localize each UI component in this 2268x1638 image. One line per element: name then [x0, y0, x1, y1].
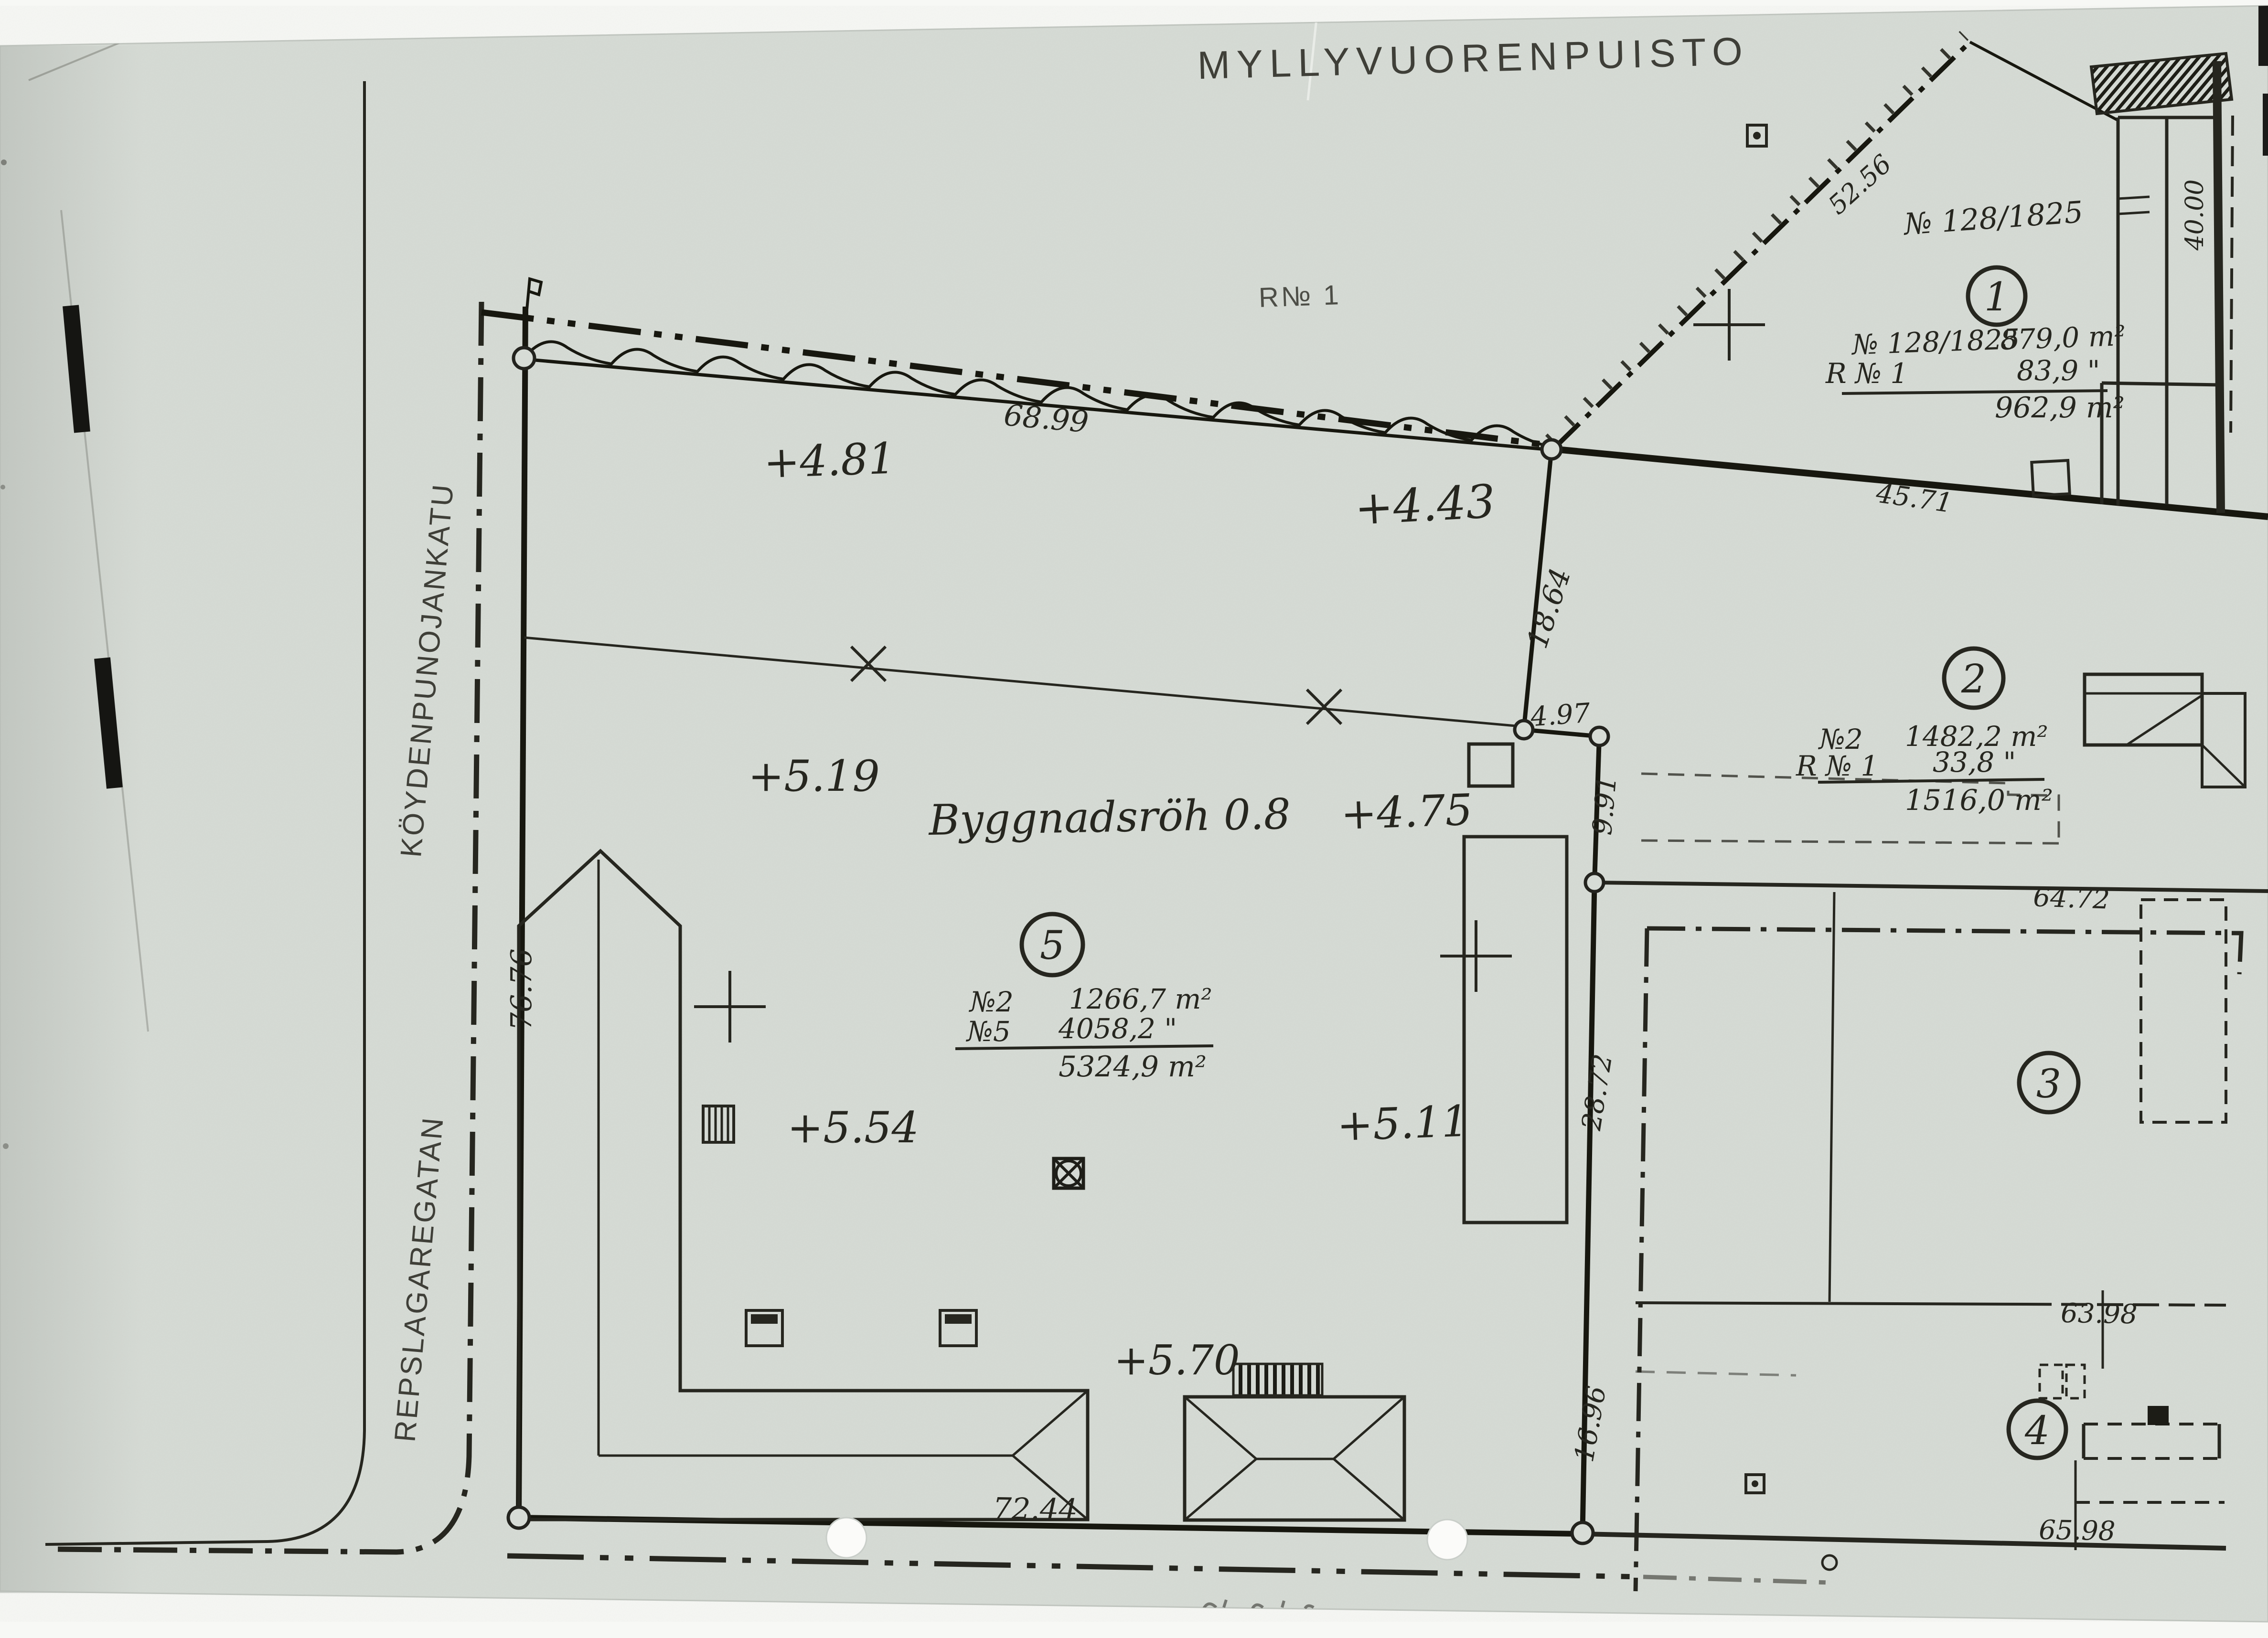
- measure-9-91: 9.91: [1587, 774, 1623, 836]
- parcel5-row1-value: 1266,7 m²: [1069, 983, 1212, 1015]
- parcel5-row2-label: №5: [965, 1015, 1011, 1048]
- line-63-98-a: [1636, 1303, 2025, 1304]
- elevation-5-11: +5.11: [1336, 1096, 1469, 1151]
- parcel1-row2-label: R № 1: [1825, 357, 1908, 390]
- elevation-4-75: +4.75: [1340, 785, 1473, 840]
- boundary-node: [1572, 1522, 1593, 1543]
- elevation-4-81: +4.81: [763, 433, 896, 488]
- parcel-3-number: 3: [2036, 1062, 2061, 1107]
- measure-72-44: 72.44: [993, 1491, 1078, 1527]
- measure-4-97: 4.97: [1529, 698, 1591, 733]
- parcel5-row2-value: 4058,2 ": [1058, 1012, 1177, 1045]
- elevation-5-70: +5.70: [1114, 1337, 1240, 1384]
- boundary-node: [1585, 873, 1604, 892]
- elevation-4-43: +4.43: [1353, 475, 1497, 535]
- elevation-5-54: +5.54: [787, 1103, 919, 1153]
- left-edge-shading: [0, 46, 143, 1593]
- parcel1-row2-value: 83,9 ": [2017, 354, 2100, 387]
- measure-65-98: 65.98: [2039, 1515, 2116, 1547]
- thick-wall-line: [2217, 61, 2221, 513]
- parcel5-total: 5324,9 m²: [1059, 1050, 1207, 1084]
- hatched-porch-strip: [1233, 1364, 1322, 1395]
- boundary-node: [514, 348, 535, 369]
- parcel-4-number: 4: [2024, 1408, 2050, 1454]
- scan-edge-mark-2: [2263, 94, 2268, 156]
- measure-40-00: 40.00: [2181, 180, 2209, 251]
- boundary-node: [1590, 727, 1608, 745]
- parcel2-row2-value: 33,8 ": [1933, 746, 2016, 778]
- building-height-note: Byggnadsröh 0.8: [928, 789, 1291, 845]
- measure-76-76: 76.76: [505, 948, 538, 1031]
- parcel2-total: 1516,0 m²: [1905, 784, 2053, 817]
- boundary-node: [1542, 440, 1561, 459]
- elevation-5-19: +5.19: [748, 751, 880, 801]
- parcel2-row2-label: R № 1: [1796, 750, 1878, 782]
- punch-hole: [826, 1518, 867, 1558]
- parcel-5-number: 5: [1040, 923, 1065, 968]
- scanned-site-plan: MYLLYVUORENPUISTO R№ 1 № 128/1825 1 № 12…: [0, 0, 2268, 1638]
- parcel1-row1-label: № 128/1825: [1850, 323, 2020, 361]
- parcel1-row1-value: 879,0 m²: [2000, 319, 2126, 356]
- boundary-node: [1515, 721, 1533, 739]
- parcel-2-number: 2: [1961, 657, 1986, 702]
- measure-64-72: 64.72: [2033, 882, 2110, 915]
- parcel1-total: 962,9 m²: [1995, 391, 2125, 425]
- area-r1-label: R№ 1: [1258, 279, 1342, 313]
- scan-edge-mark-1: [2258, 4, 2268, 66]
- punch-hole: [1427, 1520, 1467, 1560]
- parcel5-row1-label: №2: [968, 986, 1014, 1018]
- boundary-node: [508, 1507, 529, 1528]
- measure-63-98: 63.98: [2061, 1298, 2138, 1330]
- parcel-1-number: 1: [1984, 275, 2009, 320]
- measure-north: 68.99: [1003, 397, 1090, 439]
